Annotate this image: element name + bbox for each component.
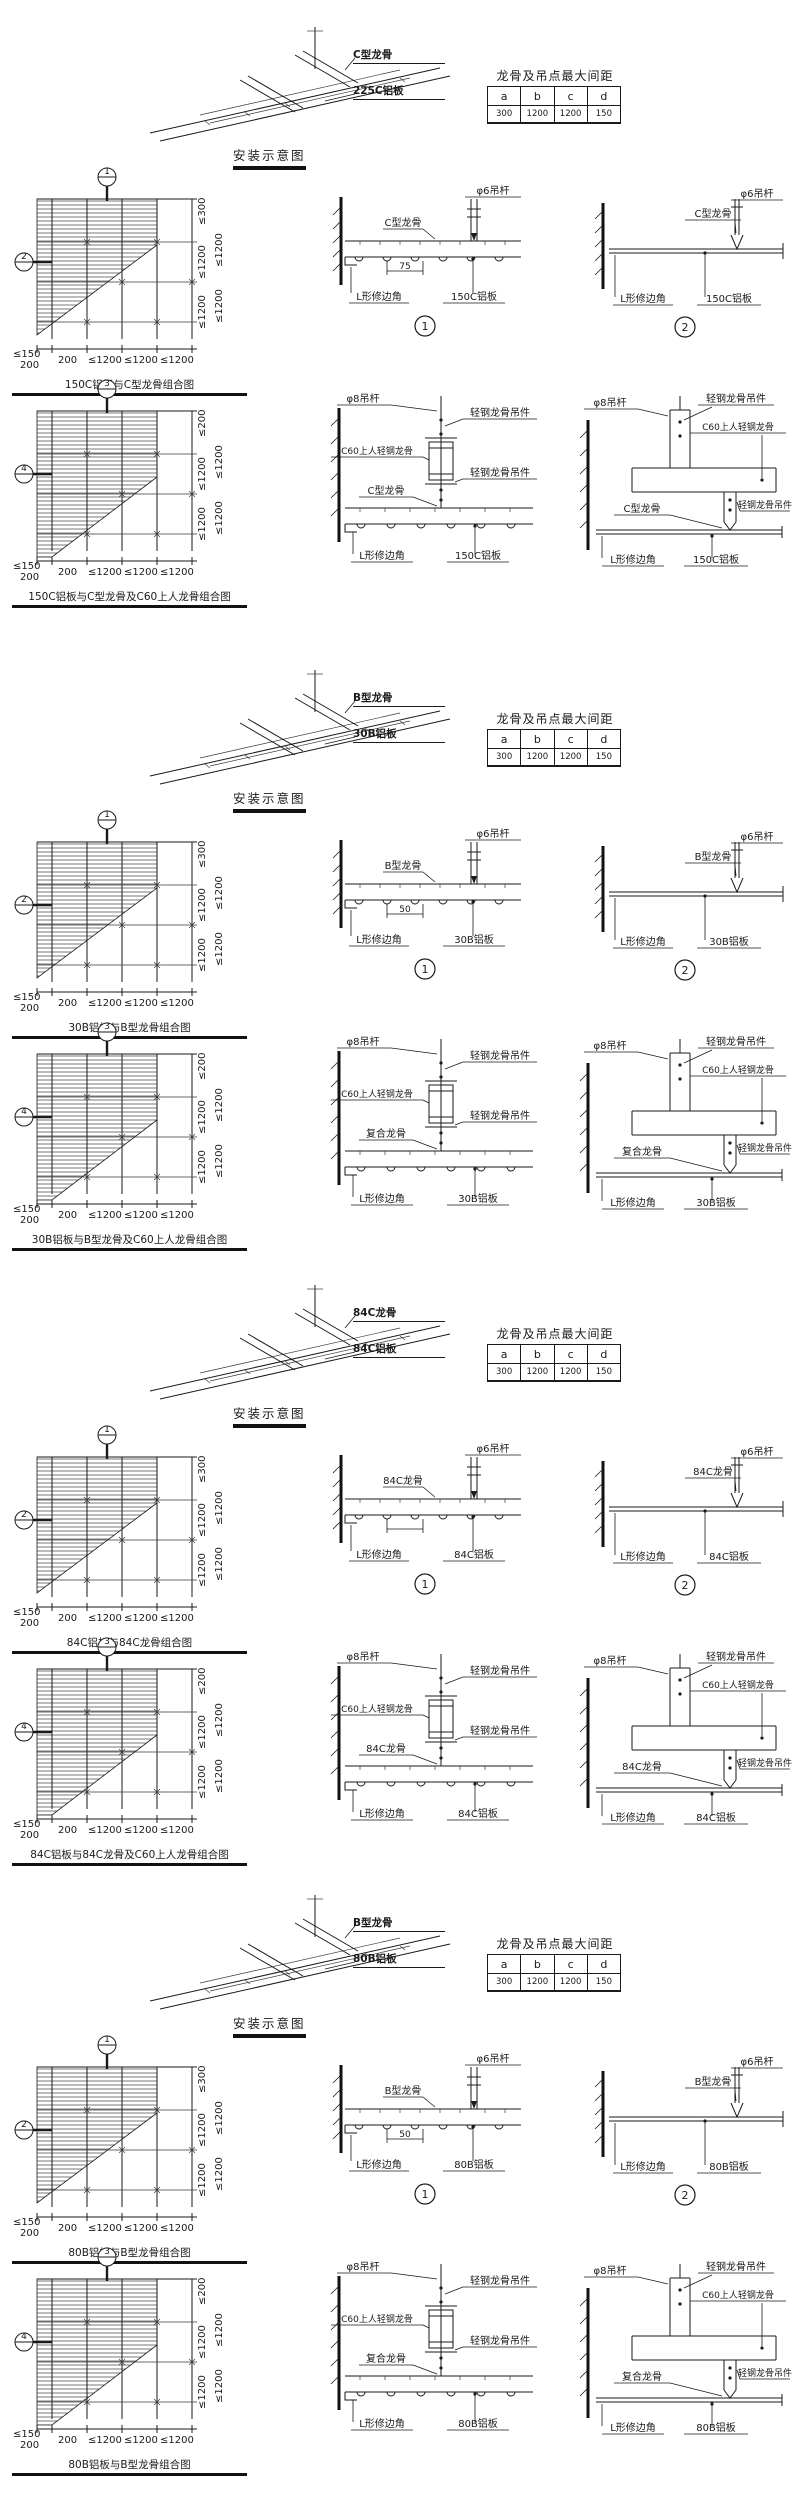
detail-label-hanger-clip-lower: 轻钢龙骨吊件 bbox=[738, 1142, 792, 1154]
detail-number: 2 bbox=[682, 1579, 689, 1592]
dim-label: ≤1200 bbox=[197, 888, 208, 922]
detail-2-lines: φ6吊杆 B型龙骨 L形修边角 30B铝板 2 bbox=[585, 828, 790, 990]
dim-label: ≤1200 bbox=[88, 998, 122, 1009]
detail-4-lines: φ8吊杆 轻钢龙骨吊件 C60上人轻钢龙骨 轻钢龙骨吊件 84C龙骨 L形修边角 bbox=[572, 1648, 792, 1838]
plan-grid-drawing: 3 4 ≤200 ≤1200 ≤1200 ≤1200 ≤1200 ≤150 20… bbox=[12, 1020, 247, 1228]
detail-label-edge-trim: L形修边角 bbox=[610, 1196, 656, 1209]
spacing-table: a b c d 300 1200 1200 150 bbox=[487, 1344, 621, 1382]
detail-label-walkable-keel: C60上人轻钢龙骨 bbox=[341, 2313, 413, 2325]
detail-label-panel: 84C铝板 bbox=[458, 1807, 498, 1820]
dim-label: ≤1200 bbox=[160, 2223, 194, 2234]
detail-label-keel: C型龙骨 bbox=[624, 502, 661, 515]
panel-zone-hatch bbox=[37, 199, 157, 335]
dim-label: ≤300 bbox=[197, 198, 208, 225]
detail-label-keel: C型龙骨 bbox=[368, 484, 405, 497]
spacing-table: a b c d 300 1200 1200 150 bbox=[487, 86, 621, 124]
dim-label: ≤1200 bbox=[88, 2223, 122, 2234]
col-header-b: b bbox=[521, 1345, 554, 1364]
detail-label-panel: 30B铝板 bbox=[709, 935, 749, 948]
detail-label-hanger-rod: φ8吊杆 bbox=[347, 1651, 380, 1663]
spacing-table: a b c d 300 1200 1200 150 bbox=[487, 729, 621, 767]
plan-caption: 84C铝板与84C龙骨及C60上人龙骨组合图 bbox=[12, 1847, 247, 1866]
spacing-value-b: 1200 bbox=[521, 749, 554, 767]
spacing-value-b: 1200 bbox=[521, 106, 554, 124]
detail-number-badge: 1 bbox=[415, 2184, 435, 2204]
detail-number: 2 bbox=[682, 321, 689, 334]
dim-label: ≤200 bbox=[197, 1668, 208, 1695]
isometric-assembly-drawing: C型龙骨 225C铝板 bbox=[145, 25, 480, 165]
ceiling-system-section: 84C龙骨 84C铝板 龙骨及吊点最大间距 a b c d 300 1200 1… bbox=[0, 1283, 800, 1895]
callout-bubble-top: 1 bbox=[98, 810, 116, 844]
spacing-value-a: 300 bbox=[488, 1974, 521, 1992]
dim-label: ≤1200 bbox=[124, 2435, 158, 2446]
col-header-b: b bbox=[521, 1955, 554, 1974]
dim-label: ≤1200 bbox=[160, 1210, 194, 1221]
ceiling-system-section: B型龙骨 30B铝板 龙骨及吊点最大间距 a b c d 300 1200 12… bbox=[0, 668, 800, 1280]
callout-number: 2 bbox=[21, 895, 27, 905]
detail-label-keel: B型龙骨 bbox=[695, 850, 732, 863]
detail-label-hanger-clip-upper: 轻钢龙骨吊件 bbox=[706, 1035, 766, 1048]
dim-label: ≤1200 bbox=[88, 1613, 122, 1624]
detail-label-hanger-rod: φ6吊杆 bbox=[477, 2053, 510, 2065]
dim-label: ≤1200 bbox=[214, 1547, 225, 1581]
detail-label-keel: B型龙骨 bbox=[385, 859, 422, 872]
dim-label: ≤1200 bbox=[197, 295, 208, 329]
dim-label: ≤1200 bbox=[197, 507, 208, 541]
dim-label: ≤1200 bbox=[160, 1825, 194, 1836]
dim-label: ≤150 bbox=[13, 2217, 40, 2228]
detail-label-panel: 84C铝板 bbox=[696, 1811, 736, 1824]
dim-label: ≤200 bbox=[197, 1053, 208, 1080]
detail-label-edge-trim: L形修边角 bbox=[356, 1548, 402, 1561]
dim-label: 200 bbox=[58, 1825, 77, 1836]
detail-label-panel: 30B铝板 bbox=[454, 933, 494, 946]
spec-table-title: 龙骨及吊点最大间距 bbox=[487, 1935, 623, 1952]
plan-grid-drawing: 1 2 ≤300 ≤1200 ≤1200 ≤1200 ≤1200 ≤150 20… bbox=[12, 165, 247, 373]
callout-number: 1 bbox=[104, 810, 110, 820]
panel-zone-hatch bbox=[37, 1669, 157, 1815]
install-diagram-heading: 安装示意图 bbox=[233, 1403, 306, 1425]
detail-label-panel: 80B铝板 bbox=[458, 2417, 498, 2430]
panel-zone-hatch bbox=[37, 1054, 157, 1200]
dim-label: ≤1200 bbox=[197, 1765, 208, 1799]
dim-label: ≤1200 bbox=[124, 1825, 158, 1836]
detail-1-lines: 84C龙骨 φ6吊杆 L形修边角 84C铝板 1 bbox=[325, 1443, 530, 1605]
dim-label: ≤1200 bbox=[214, 2101, 225, 2135]
detail-label-hanger-clip-lower: 轻钢龙骨吊件 bbox=[470, 2334, 530, 2347]
detail-label-panel: 80B铝板 bbox=[709, 2160, 749, 2173]
detail-number-badge: 1 bbox=[415, 316, 435, 336]
panel-zone-hatch bbox=[37, 2067, 157, 2203]
detail-number-badge: 2 bbox=[675, 960, 695, 980]
dim-label: ≤300 bbox=[197, 1456, 208, 1483]
dim-label: 200 bbox=[20, 1003, 39, 1014]
dim-label: ≤1200 bbox=[197, 2163, 208, 2197]
detail-number: 2 bbox=[682, 2189, 689, 2202]
detail-label-keel: 84C龙骨 bbox=[693, 1465, 733, 1478]
callout-number: 3 bbox=[104, 1637, 110, 1647]
dim-label: ≤1200 bbox=[124, 998, 158, 1009]
detail-3-lines: φ8吊杆 轻钢龙骨吊件 C60上人轻钢龙骨 轻钢龙骨吊件 复合龙骨 L形修边角 bbox=[325, 1033, 545, 1223]
dim-label: ≤1200 bbox=[88, 2435, 122, 2446]
dim-label: ≤1200 bbox=[160, 567, 194, 578]
callout-number: 3 bbox=[104, 379, 110, 389]
dim-label: ≤1200 bbox=[214, 2369, 225, 2403]
detail-label-keel: B型龙骨 bbox=[385, 2084, 422, 2097]
detail-label-hanger-rod: φ8吊杆 bbox=[347, 2261, 380, 2273]
spacing-spec-table: 龙骨及吊点最大间距 a b c d 300 1200 1200 150 bbox=[487, 710, 623, 767]
detail-number: 1 bbox=[422, 963, 429, 976]
dim-label: ≤150 bbox=[13, 2429, 40, 2440]
col-header-d: d bbox=[587, 87, 620, 106]
panel-zone-hatch bbox=[37, 842, 157, 978]
dim-label: 200 bbox=[20, 1215, 39, 1226]
callout-number: 4 bbox=[21, 1107, 27, 1117]
callout-number: 1 bbox=[104, 167, 110, 177]
dim-label: ≤1200 bbox=[160, 1613, 194, 1624]
isometric-assembly-drawing: B型龙骨 30B铝板 bbox=[145, 668, 480, 808]
plan-grid-drawing: 3 4 ≤200 ≤1200 ≤1200 ≤1200 ≤1200 ≤150 20… bbox=[12, 1635, 247, 1843]
callout-number: 3 bbox=[104, 1022, 110, 1032]
detail-dim: 50 bbox=[399, 905, 411, 915]
dim-label: ≤1200 bbox=[214, 1491, 225, 1525]
dim-label: 200 bbox=[58, 1210, 77, 1221]
detail-4-lines: φ8吊杆 轻钢龙骨吊件 C60上人轻钢龙骨 轻钢龙骨吊件 C型龙骨 L形修边角 bbox=[572, 390, 792, 580]
detail-label-edge-trim: L形修边角 bbox=[620, 292, 666, 305]
detail-label-edge-trim: L形修边角 bbox=[610, 1811, 656, 1824]
dim-label: 200 bbox=[58, 1613, 77, 1624]
dim-label: ≤1200 bbox=[124, 1613, 158, 1624]
detail-label-keel: C型龙骨 bbox=[695, 207, 732, 220]
iso-keel-label: B型龙骨 bbox=[353, 1915, 445, 1932]
spacing-value-d: 150 bbox=[587, 1974, 620, 1992]
detail-label-keel: 复合龙骨 bbox=[366, 1127, 406, 1140]
dim-label: ≤1200 bbox=[88, 355, 122, 366]
detail-number: 1 bbox=[422, 2188, 429, 2201]
dim-label: ≤1200 bbox=[160, 355, 194, 366]
callout-number: 1 bbox=[104, 2035, 110, 2045]
dim-label: ≤1200 bbox=[197, 2375, 208, 2409]
panel-zone-hatch bbox=[37, 1457, 157, 1593]
detail-number-badge: 1 bbox=[415, 959, 435, 979]
panel-zone-hatch bbox=[37, 2279, 157, 2425]
dim-label: ≤300 bbox=[197, 841, 208, 868]
callout-bubble-top: 3 bbox=[98, 1022, 116, 1056]
plan-grid-drawing: 1 2 ≤300 ≤1200 ≤1200 ≤1200 ≤1200 ≤150 20… bbox=[12, 1423, 247, 1631]
spacing-value-a: 300 bbox=[488, 106, 521, 124]
detail-label-panel: 80B铝板 bbox=[454, 2158, 494, 2171]
spacing-table: a b c d 300 1200 1200 150 bbox=[487, 1954, 621, 1992]
detail-1-lines: B型龙骨 φ6吊杆 50 L形修边角 30B铝板 1 bbox=[325, 828, 530, 990]
detail-label-walkable-keel: C60上人轻钢龙骨 bbox=[702, 2289, 774, 2301]
detail-number: 1 bbox=[422, 1578, 429, 1591]
dim-label: ≤150 bbox=[13, 992, 40, 1003]
ceiling-system-section: B型龙骨 80B铝板 龙骨及吊点最大间距 a b c d 300 1200 12… bbox=[0, 1893, 800, 2498]
detail-label-keel: 84C龙骨 bbox=[383, 1474, 423, 1487]
callout-bubble-top: 3 bbox=[98, 379, 116, 413]
dim-label: ≤1200 bbox=[214, 932, 225, 966]
col-header-c: c bbox=[554, 1345, 587, 1364]
spacing-value-b: 1200 bbox=[521, 1364, 554, 1382]
detail-label-hanger-clip-upper: 轻钢龙骨吊件 bbox=[470, 1664, 530, 1677]
spacing-value-a: 300 bbox=[488, 749, 521, 767]
detail-label-keel: 84C龙骨 bbox=[366, 1742, 406, 1755]
dim-label: ≤150 bbox=[13, 561, 40, 572]
callout-number: 2 bbox=[21, 1510, 27, 1520]
ceiling-installation-drawing-sheet: C型龙骨 225C铝板 龙骨及吊点最大间距 a b c d 300 1200 1… bbox=[0, 0, 800, 2498]
dim-label: ≤1200 bbox=[197, 245, 208, 279]
iso-panel-label: 84C铝板 bbox=[353, 1341, 445, 1358]
col-header-a: a bbox=[488, 1955, 521, 1974]
isometric-assembly-drawing: B型龙骨 80B铝板 bbox=[145, 1893, 480, 2033]
iso-keel-label: 84C龙骨 bbox=[353, 1305, 445, 1322]
detail-label-panel: 150C铝板 bbox=[455, 549, 501, 562]
detail-label-walkable-keel: C60上人轻钢龙骨 bbox=[341, 445, 413, 457]
detail-label-edge-trim: L形修边角 bbox=[610, 2421, 656, 2434]
dim-label: ≤1200 bbox=[197, 938, 208, 972]
callout-bubble-top: 1 bbox=[98, 167, 116, 201]
detail-label-hanger-clip-upper: 轻钢龙骨吊件 bbox=[706, 1650, 766, 1663]
dim-label: ≤150 bbox=[13, 1819, 40, 1830]
detail-4-lines: φ8吊杆 轻钢龙骨吊件 C60上人轻钢龙骨 轻钢龙骨吊件 复合龙骨 L形修边角 bbox=[572, 1033, 792, 1223]
dim-label: ≤1200 bbox=[214, 1703, 225, 1737]
col-header-d: d bbox=[587, 730, 620, 749]
col-header-d: d bbox=[587, 1345, 620, 1364]
plan-grid-drawing: 1 2 ≤300 ≤1200 ≤1200 ≤1200 ≤1200 ≤150 20… bbox=[12, 2033, 247, 2241]
detail-label-hanger-rod: φ6吊杆 bbox=[741, 2056, 774, 2068]
detail-number-badge: 2 bbox=[675, 1575, 695, 1595]
col-header-a: a bbox=[488, 1345, 521, 1364]
isometric-assembly-drawing: 84C龙骨 84C铝板 bbox=[145, 1283, 480, 1423]
detail-label-hanger-rod: φ6吊杆 bbox=[741, 831, 774, 843]
detail-label-hanger-clip-lower: 轻钢龙骨吊件 bbox=[470, 1724, 530, 1737]
col-header-a: a bbox=[488, 730, 521, 749]
iso-panel-label: 225C铝板 bbox=[353, 83, 445, 100]
dim-label: 200 bbox=[58, 2223, 77, 2234]
spec-table-title: 龙骨及吊点最大间距 bbox=[487, 710, 623, 727]
install-diagram-heading: 安装示意图 bbox=[233, 788, 306, 810]
detail-label-edge-trim: L形修边角 bbox=[356, 290, 402, 303]
ceiling-system-section: C型龙骨 225C铝板 龙骨及吊点最大间距 a b c d 300 1200 1… bbox=[0, 25, 800, 637]
detail-label-hanger-clip-upper: 轻钢龙骨吊件 bbox=[706, 392, 766, 405]
dim-label: 200 bbox=[58, 567, 77, 578]
detail-label-hanger-rod: φ6吊杆 bbox=[477, 828, 510, 840]
dim-label: ≤1200 bbox=[88, 1825, 122, 1836]
detail-label-edge-trim: L形修边角 bbox=[356, 933, 402, 946]
dim-label: ≤1200 bbox=[160, 2435, 194, 2446]
dim-label: ≤1200 bbox=[214, 1759, 225, 1793]
dim-label: ≤1200 bbox=[124, 1210, 158, 1221]
detail-label-hanger-rod: φ8吊杆 bbox=[594, 397, 627, 409]
callout-number: 4 bbox=[21, 464, 27, 474]
detail-3-lines: φ8吊杆 轻钢龙骨吊件 C60上人轻钢龙骨 轻钢龙骨吊件 84C龙骨 L形修边角 bbox=[325, 1648, 545, 1838]
detail-label-hanger-clip-lower: 轻钢龙骨吊件 bbox=[738, 499, 792, 511]
spacing-value-d: 150 bbox=[587, 749, 620, 767]
detail-label-panel: 84C铝板 bbox=[454, 1548, 494, 1561]
detail-label-hanger-rod: φ8吊杆 bbox=[594, 1655, 627, 1667]
dim-label: ≤1200 bbox=[197, 1150, 208, 1184]
detail-label-edge-trim: L形修边角 bbox=[359, 1192, 405, 1205]
col-header-a: a bbox=[488, 87, 521, 106]
dim-label: ≤1200 bbox=[197, 2113, 208, 2147]
detail-label-edge-trim: L形修边角 bbox=[610, 553, 656, 566]
detail-label-hanger-rod: φ8吊杆 bbox=[594, 1040, 627, 1052]
detail-number: 2 bbox=[682, 964, 689, 977]
dim-label: ≤1200 bbox=[197, 457, 208, 491]
detail-label-walkable-keel: C60上人轻钢龙骨 bbox=[702, 421, 774, 433]
col-header-d: d bbox=[587, 1955, 620, 1974]
detail-3-lines: φ8吊杆 轻钢龙骨吊件 C60上人轻钢龙骨 轻钢龙骨吊件 复合龙骨 L形修边角 bbox=[325, 2258, 545, 2448]
plan-grid-drawing: 3 4 ≤200 ≤1200 ≤1200 ≤1200 ≤1200 ≤150 20… bbox=[12, 377, 247, 585]
dim-label: ≤1200 bbox=[214, 1088, 225, 1122]
dim-label: ≤1200 bbox=[214, 233, 225, 267]
detail-label-hanger-clip-lower: 轻钢龙骨吊件 bbox=[738, 1757, 792, 1769]
dim-label: 200 bbox=[20, 2440, 39, 2451]
dim-label: 200 bbox=[58, 2435, 77, 2446]
detail-label-hanger-clip-lower: 轻钢龙骨吊件 bbox=[470, 1109, 530, 1122]
spec-table-title: 龙骨及吊点最大间距 bbox=[487, 67, 623, 84]
callout-number: 3 bbox=[104, 2247, 110, 2257]
spec-table-title: 龙骨及吊点最大间距 bbox=[487, 1325, 623, 1342]
detail-label-hanger-rod: φ6吊杆 bbox=[477, 1443, 510, 1455]
dim-label: ≤1200 bbox=[214, 501, 225, 535]
callout-number: 1 bbox=[104, 1425, 110, 1435]
detail-label-hanger-rod: φ6吊杆 bbox=[741, 188, 774, 200]
detail-1-lines: B型龙骨 φ6吊杆 50 L形修边角 80B铝板 1 bbox=[325, 2053, 530, 2215]
detail-label-edge-trim: L形修边角 bbox=[620, 1550, 666, 1563]
spacing-value-b: 1200 bbox=[521, 1974, 554, 1992]
dim-label: ≤1200 bbox=[214, 876, 225, 910]
dim-label: ≤1200 bbox=[88, 1210, 122, 1221]
detail-label-keel: B型龙骨 bbox=[695, 2075, 732, 2088]
dim-label: ≤1200 bbox=[214, 1144, 225, 1178]
detail-number: 1 bbox=[422, 320, 429, 333]
dim-label: ≤200 bbox=[197, 410, 208, 437]
detail-label-hanger-rod: φ8吊杆 bbox=[594, 2265, 627, 2277]
dim-label: ≤1200 bbox=[197, 2325, 208, 2359]
plan-caption: 30B铝板与B型龙骨及C60上人龙骨组合图 bbox=[12, 1232, 247, 1251]
iso-panel-label: 80B铝板 bbox=[353, 1951, 445, 1968]
detail-label-panel: 150C铝板 bbox=[693, 553, 739, 566]
dim-label: ≤1200 bbox=[124, 355, 158, 366]
spacing-value-c: 1200 bbox=[554, 1974, 587, 1992]
detail-label-hanger-clip-upper: 轻钢龙骨吊件 bbox=[470, 1049, 530, 1062]
dim-label: 200 bbox=[20, 572, 39, 583]
dim-label: ≤150 bbox=[13, 1607, 40, 1618]
detail-label-hanger-rod: φ6吊杆 bbox=[477, 185, 510, 197]
callout-number: 4 bbox=[21, 1722, 27, 1732]
dim-label: ≤1200 bbox=[197, 1503, 208, 1537]
dim-label: ≤1200 bbox=[160, 998, 194, 1009]
dim-label: ≤300 bbox=[197, 2066, 208, 2093]
callout-number: 2 bbox=[21, 2120, 27, 2130]
callout-bubble-top: 1 bbox=[98, 2035, 116, 2069]
detail-label-edge-trim: L形修边角 bbox=[620, 2160, 666, 2173]
col-header-c: c bbox=[554, 730, 587, 749]
detail-3-lines: φ8吊杆 轻钢龙骨吊件 C60上人轻钢龙骨 轻钢龙骨吊件 C型龙骨 L形修边角 bbox=[325, 390, 545, 580]
spacing-value-c: 1200 bbox=[554, 106, 587, 124]
detail-number-badge: 2 bbox=[675, 2185, 695, 2205]
dim-label: ≤1200 bbox=[214, 289, 225, 323]
col-header-b: b bbox=[521, 730, 554, 749]
dim-label: ≤1200 bbox=[214, 2157, 225, 2191]
callout-number: 4 bbox=[21, 2332, 27, 2342]
detail-label-hanger-clip-upper: 轻钢龙骨吊件 bbox=[470, 2274, 530, 2287]
col-header-c: c bbox=[554, 87, 587, 106]
col-header-c: c bbox=[554, 1955, 587, 1974]
dim-label: ≤150 bbox=[13, 349, 40, 360]
detail-label-edge-trim: L形修边角 bbox=[620, 935, 666, 948]
spacing-value-d: 150 bbox=[587, 1364, 620, 1382]
install-diagram-heading: 安装示意图 bbox=[233, 2013, 306, 2035]
plan-grid-drawing: 3 4 ≤200 ≤1200 ≤1200 ≤1200 ≤1200 ≤150 20… bbox=[12, 2245, 247, 2453]
dim-label: 200 bbox=[20, 1618, 39, 1629]
dim-label: ≤1200 bbox=[88, 567, 122, 578]
callout-bubble-top: 1 bbox=[98, 1425, 116, 1459]
detail-label-panel: 84C铝板 bbox=[709, 1550, 749, 1563]
detail-1-lines: C型龙骨 φ6吊杆 75 L形修边角 150C铝板 1 bbox=[325, 185, 530, 347]
detail-number-badge: 1 bbox=[415, 1574, 435, 1594]
spacing-spec-table: 龙骨及吊点最大间距 a b c d 300 1200 1200 150 bbox=[487, 1325, 623, 1382]
detail-number-badge: 2 bbox=[675, 317, 695, 337]
detail-label-keel: 84C龙骨 bbox=[622, 1760, 662, 1773]
detail-label-panel: 80B铝板 bbox=[696, 2421, 736, 2434]
dim-label: 200 bbox=[58, 998, 77, 1009]
dim-label: 200 bbox=[58, 355, 77, 366]
col-header-b: b bbox=[521, 87, 554, 106]
detail-label-keel: C型龙骨 bbox=[385, 216, 422, 229]
detail-label-hanger-clip-upper: 轻钢龙骨吊件 bbox=[470, 406, 530, 419]
spacing-spec-table: 龙骨及吊点最大间距 a b c d 300 1200 1200 150 bbox=[487, 67, 623, 124]
detail-2-lines: φ6吊杆 84C龙骨 L形修边角 84C铝板 2 bbox=[585, 1443, 790, 1605]
detail-label-walkable-keel: C60上人轻钢龙骨 bbox=[341, 1088, 413, 1100]
callout-bubble-top: 3 bbox=[98, 1637, 116, 1671]
dim-label: 200 bbox=[20, 1830, 39, 1841]
detail-label-hanger-rod: φ6吊杆 bbox=[741, 1446, 774, 1458]
detail-label-hanger-rod: φ8吊杆 bbox=[347, 1036, 380, 1048]
detail-label-edge-trim: L形修边角 bbox=[359, 2417, 405, 2430]
spacing-spec-table: 龙骨及吊点最大间距 a b c d 300 1200 1200 150 bbox=[487, 1935, 623, 1992]
callout-bubble-top: 3 bbox=[98, 2247, 116, 2281]
detail-dim: 50 bbox=[399, 2130, 411, 2140]
detail-label-hanger-clip-lower: 轻钢龙骨吊件 bbox=[470, 466, 530, 479]
install-diagram-heading: 安装示意图 bbox=[233, 145, 306, 167]
spacing-value-c: 1200 bbox=[554, 1364, 587, 1382]
spacing-value-c: 1200 bbox=[554, 749, 587, 767]
iso-keel-label: B型龙骨 bbox=[353, 690, 445, 707]
detail-label-walkable-keel: C60上人轻钢龙骨 bbox=[341, 1703, 413, 1715]
panel-zone-hatch bbox=[37, 411, 157, 557]
detail-label-panel: 150C铝板 bbox=[706, 292, 752, 305]
iso-panel-label: 30B铝板 bbox=[353, 726, 445, 743]
detail-2-lines: φ6吊杆 B型龙骨 L形修边角 80B铝板 2 bbox=[585, 2053, 790, 2215]
callout-number: 2 bbox=[21, 252, 27, 262]
detail-label-edge-trim: L形修边角 bbox=[359, 549, 405, 562]
detail-label-hanger-rod: φ8吊杆 bbox=[347, 393, 380, 405]
dim-label: ≤1200 bbox=[214, 2313, 225, 2347]
dim-label: 200 bbox=[20, 2228, 39, 2239]
dim-label: ≤1200 bbox=[214, 445, 225, 479]
detail-label-edge-trim: L形修边角 bbox=[359, 1807, 405, 1820]
dim-label: ≤1200 bbox=[124, 567, 158, 578]
plan-caption: 80B铝板与B型龙骨组合图 bbox=[12, 2457, 247, 2476]
dim-label: ≤200 bbox=[197, 2278, 208, 2305]
detail-label-hanger-clip-lower: 轻钢龙骨吊件 bbox=[738, 2367, 792, 2379]
plan-caption: 150C铝板与C型龙骨及C60上人龙骨组合图 bbox=[12, 589, 247, 608]
dim-label: ≤1200 bbox=[197, 1715, 208, 1749]
detail-label-keel: 复合龙骨 bbox=[622, 2370, 662, 2383]
plan-grid-drawing: 1 2 ≤300 ≤1200 ≤1200 ≤1200 ≤1200 ≤150 20… bbox=[12, 808, 247, 1016]
